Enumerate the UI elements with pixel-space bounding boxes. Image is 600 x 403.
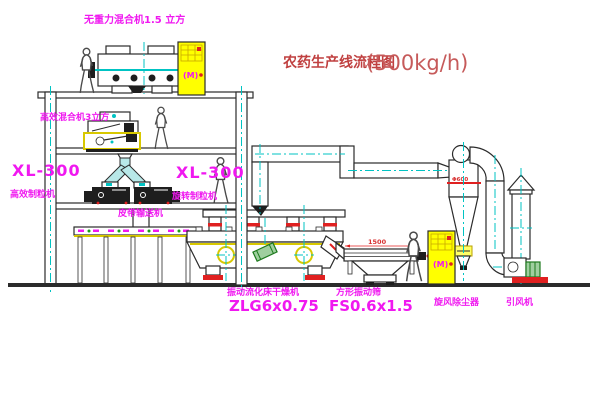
ground-line <box>8 283 590 287</box>
label-cyclone: 旋风除尘器 <box>433 296 480 308</box>
cad-drawing: (M) <box>0 0 600 403</box>
label-fan: 引风机 <box>506 296 533 308</box>
control-cabinet-2: (M) <box>428 231 455 284</box>
y-split-pipe <box>102 158 150 188</box>
label-granulator-mid-name: 旋转制粒机 <box>171 190 217 202</box>
building-right-column <box>236 86 247 292</box>
control-cabinet-1: (M) <box>178 42 205 95</box>
label-granulator-mid-model: XL-300 <box>176 163 245 182</box>
label-granulator-left-model: XL-300 <box>12 161 81 180</box>
cabinet1-motor-mark: (M) <box>183 71 198 80</box>
label-granulator-left-name: 高效制粒机 <box>10 188 55 200</box>
screen-dim-text: 1500 <box>368 238 387 246</box>
label-screen-model: FS0.6x1.5 <box>329 297 413 315</box>
label-second-mixer: 高效混合机3立方 <box>40 111 109 123</box>
induced-draft-fan <box>504 258 548 283</box>
exhaust-duct <box>252 144 452 216</box>
flow-diagram-canvas: (M) <box>0 0 600 403</box>
cabinet2-motor-mark: (M) <box>433 260 448 269</box>
label-dryer-model: ZLG6x0.75 <box>229 297 319 315</box>
label-belt-conveyor: 皮带输送机 <box>117 207 163 219</box>
page-title-capacity: (500kg/h) <box>366 51 468 75</box>
person-figure <box>155 107 168 149</box>
cyclone-diameter-text: Φ600 <box>452 177 468 183</box>
fluid-bed-dryer <box>187 205 345 281</box>
label-top-mixer: 无重力混合机1.5 立方 <box>83 13 185 26</box>
belt-conveyor <box>74 209 202 283</box>
granulator-machines <box>84 187 180 204</box>
